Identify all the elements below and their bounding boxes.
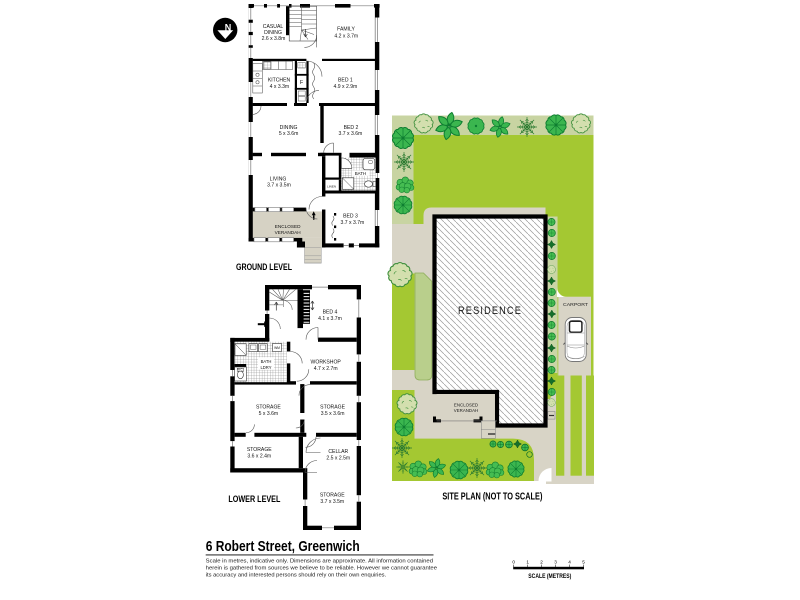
svg-text:2.5 x 2.5m: 2.5 x 2.5m [326,456,350,462]
svg-text:4.7 x 2.7m: 4.7 x 2.7m [314,366,338,372]
svg-text:6 Robert Street, Greenwich: 6 Robert Street, Greenwich [206,539,360,555]
svg-text:3.7 x 3.5m: 3.7 x 3.5m [267,183,291,189]
svg-text:5: 5 [582,560,585,565]
svg-text:WM: WM [274,346,280,350]
svg-text:BED 3: BED 3 [343,214,358,220]
svg-text:SITE PLAN (NOT TO SCALE): SITE PLAN (NOT TO SCALE) [442,492,542,503]
svg-text:BATH: BATH [355,171,366,176]
svg-text:BATH: BATH [261,359,272,364]
svg-text:5 x 3.6m: 5 x 3.6m [259,411,279,417]
svg-text:3.5 x 3.6m: 3.5 x 3.6m [321,411,345,417]
svg-text:VERANDAH: VERANDAH [275,230,301,235]
svg-text:Scale in metres, indicative on: Scale in metres, indicative only. Dimens… [206,559,433,565]
svg-text:4 x 3.3m: 4 x 3.3m [270,84,290,90]
svg-text:3.7 x 3.5m: 3.7 x 3.5m [320,499,344,505]
svg-text:STORAGE: STORAGE [320,405,345,411]
svg-text:3.7 x 3.7m: 3.7 x 3.7m [341,220,365,226]
svg-text:4.2 x 3.7m: 4.2 x 3.7m [334,34,358,40]
svg-text:BED 4: BED 4 [323,310,338,316]
svg-text:FAMILY: FAMILY [337,27,355,33]
svg-text:2: 2 [540,560,543,565]
svg-text:BED 1: BED 1 [338,78,353,84]
svg-text:W.C.: W.C. [237,367,243,371]
svg-text:RESIDENCE: RESIDENCE [458,305,522,317]
svg-text:3: 3 [554,560,557,565]
svg-text:2.6 x 3.8m: 2.6 x 3.8m [262,36,286,42]
svg-text:STORAGE: STORAGE [320,493,345,499]
svg-text:herein is gathered from source: herein is gathered from sources we belie… [206,566,437,572]
svg-text:SCALE (METRES): SCALE (METRES) [528,574,571,580]
svg-text:LDRY: LDRY [260,365,271,370]
svg-text:4: 4 [568,560,571,565]
svg-text:ENCLOSED: ENCLOSED [275,224,301,229]
svg-text:LOWER LEVEL: LOWER LEVEL [228,494,280,505]
svg-text:3.7 x 3.6m: 3.7 x 3.6m [339,131,363,137]
svg-text:4.9 x 2.9m: 4.9 x 2.9m [334,84,358,90]
svg-text:5 x 3.6m: 5 x 3.6m [279,131,299,137]
svg-text:STORAGE: STORAGE [247,447,272,453]
svg-text:CELLAR: CELLAR [328,449,348,455]
svg-text:GROUND LEVEL: GROUND LEVEL [236,262,292,273]
svg-text:VERANDAH: VERANDAH [454,408,478,413]
svg-text:0: 0 [512,560,515,565]
svg-text:its accuracy and interested pe: its accuracy and interested persons shou… [206,573,387,579]
svg-text:1: 1 [526,560,529,565]
svg-text:WORKSHOP: WORKSHOP [311,360,342,366]
svg-text:STORAGE: STORAGE [256,405,281,411]
svg-text:LINEN: LINEN [327,185,336,189]
svg-text:3.6 x 2.4m: 3.6 x 2.4m [247,454,271,460]
svg-text:CARPORT: CARPORT [563,302,588,307]
svg-text:N: N [225,22,232,32]
svg-text:KITCHEN: KITCHEN [268,78,291,84]
svg-text:ENCLOSED: ENCLOSED [454,403,478,408]
svg-text:4.1 x 3.7m: 4.1 x 3.7m [318,316,342,322]
